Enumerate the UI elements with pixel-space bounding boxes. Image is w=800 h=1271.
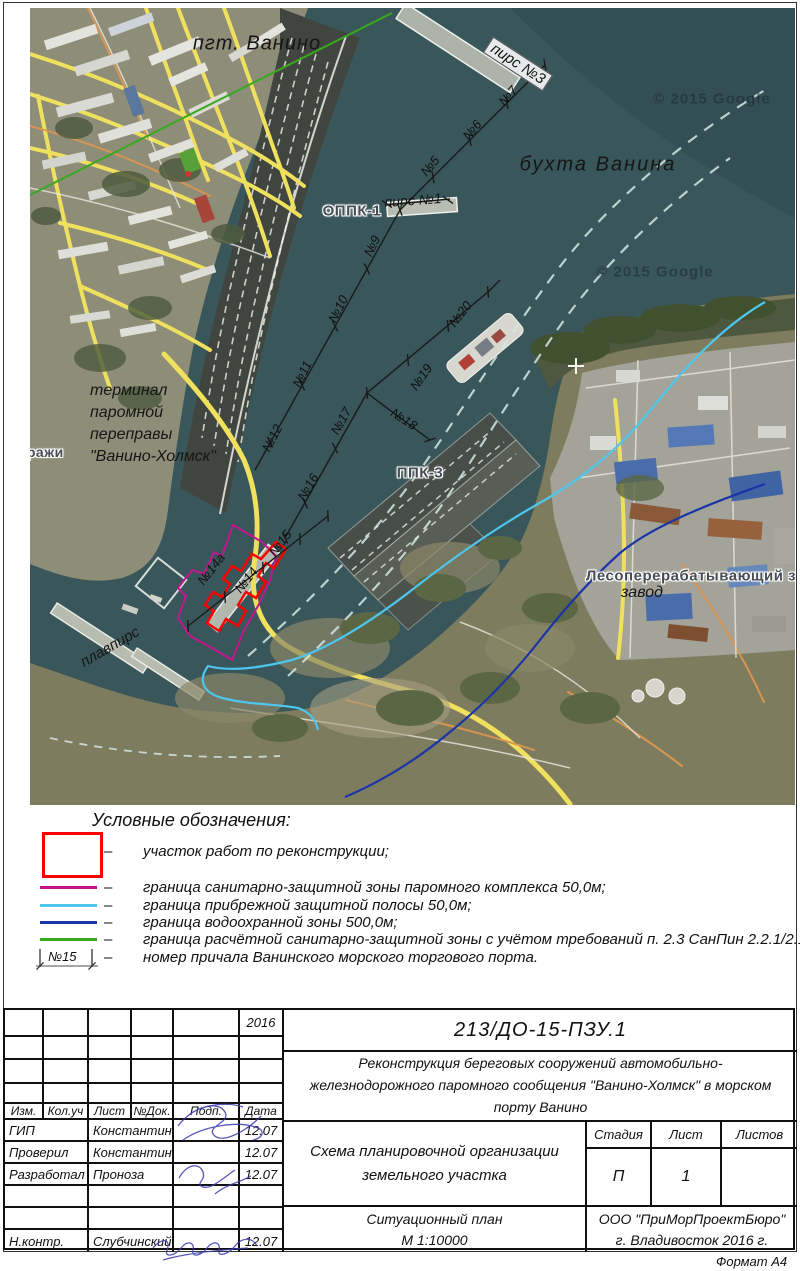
staff-role: Разработал <box>5 1164 89 1186</box>
revision-cell <box>132 1010 174 1037</box>
revision-cell <box>132 1060 174 1084</box>
sawmill-label: Лесоперерабатывающий з <box>586 568 795 585</box>
column-header-data: Дата <box>240 1104 284 1120</box>
revision-cell <box>240 1037 284 1060</box>
staff-date: 12.07 <box>240 1142 284 1164</box>
legend-dash: – <box>104 843 112 860</box>
revision-cell <box>89 1010 132 1037</box>
staff-signature-cell <box>174 1208 240 1230</box>
ppk3-label: ППК-3 <box>397 465 444 482</box>
revision-cell <box>89 1037 132 1060</box>
staff-date: 12.07 <box>240 1230 284 1252</box>
staff-date: 12.07 <box>240 1164 284 1186</box>
staff-signature-cell <box>174 1164 240 1186</box>
revision-cell <box>44 1010 89 1037</box>
google-watermark-2: © 2015 Google <box>596 264 713 281</box>
sheet-value: 1 <box>652 1149 722 1207</box>
legend-dash: – <box>104 879 112 896</box>
revision-cell <box>174 1010 240 1037</box>
revision-cell <box>132 1037 174 1060</box>
staff-signature-cell <box>174 1142 240 1164</box>
garages-label: гаражи <box>30 444 64 460</box>
staff-date <box>240 1208 284 1230</box>
legend-item-text: граница расчётной санитарно-защитной зон… <box>143 931 800 948</box>
drawing-title: Схема планировочной организации земельно… <box>284 1122 587 1207</box>
company-name: ООО "ПриМорПроектБюро" г. Владивосток 20… <box>587 1207 797 1252</box>
legend-dash: – <box>104 897 112 914</box>
google-watermark: © 2015 Google <box>653 91 770 108</box>
sawmill-label-2: завод <box>621 584 663 602</box>
legend-dash: – <box>104 914 112 931</box>
stage-header: Стадия <box>587 1122 652 1149</box>
legend-dash: – <box>104 949 112 966</box>
legend-title: Условные обозначения: <box>92 810 291 831</box>
oppk1-label: ОППК-1 <box>323 203 382 220</box>
revision-cell <box>5 1060 44 1084</box>
revision-cell <box>44 1037 89 1060</box>
legend-line-swatch-cyan <box>40 904 97 907</box>
revision-cell <box>174 1084 240 1104</box>
column-header-koluch: Кол.уч <box>44 1104 89 1120</box>
staff-signature-cell <box>174 1186 240 1208</box>
legend-item-text: граница санитарно-защитной зоны паромног… <box>143 879 606 896</box>
format-note: Формат А4 <box>716 1254 787 1269</box>
legend-line-swatch-magenta <box>40 886 97 889</box>
town-label: пгт. Ванино <box>193 33 321 56</box>
staff-date <box>240 1186 284 1208</box>
view-name: Ситуационный план М 1:10000 <box>284 1207 587 1252</box>
column-header-izm: Изм. <box>5 1104 44 1120</box>
document-code: 213/ДО-15-ПЗУ.1 <box>284 1010 797 1052</box>
year-cell: 2016 <box>240 1010 284 1037</box>
legend-line-swatch-blue <box>40 921 97 924</box>
staff-name <box>89 1186 174 1208</box>
staff-role: Н.контр. <box>5 1230 89 1252</box>
revision-cell <box>89 1060 132 1084</box>
legend-item-text: граница прибрежной защитной полосы 50,0м… <box>143 897 472 914</box>
legend-item-text: граница водоохранной зоны 500,0м; <box>143 914 398 931</box>
staff-name: Слубчинский <box>89 1230 174 1252</box>
revision-cell <box>174 1060 240 1084</box>
drawing-sheet: пгт. Ванино бухта Ванина пирс №3 пирс №1… <box>0 0 800 1271</box>
staff-name: Проноза <box>89 1164 174 1186</box>
revision-cell <box>44 1084 89 1104</box>
staff-role: Проверил <box>5 1142 89 1164</box>
staff-date: 12.07 <box>240 1120 284 1142</box>
project-name: Реконструкция береговых сооружений автом… <box>284 1052 797 1122</box>
staff-name: Константинов <box>89 1120 174 1142</box>
bay-label: бухта Ванина <box>520 154 677 177</box>
situational-plan-map: пгт. Ванино бухта Ванина пирс №3 пирс №1… <box>30 8 795 805</box>
stage-value: П <box>587 1149 652 1207</box>
column-header-dok: №Док. <box>132 1104 174 1120</box>
svg-text:№15: №15 <box>48 949 77 964</box>
revision-cell <box>132 1084 174 1104</box>
ferry-terminal-label: терминал паромной переправы "Ванино-Холм… <box>90 380 216 468</box>
staff-role <box>5 1208 89 1230</box>
revision-cell <box>174 1037 240 1060</box>
staff-signature-cell <box>174 1230 240 1252</box>
legend-berth-number-symbol: №15 <box>34 946 100 972</box>
revision-cell <box>5 1084 44 1104</box>
revision-cell <box>89 1084 132 1104</box>
legend-item-text: участок работ по реконструкции; <box>143 843 389 860</box>
staff-name: Константинов <box>89 1142 174 1164</box>
staff-role <box>5 1186 89 1208</box>
revision-cell <box>5 1010 44 1037</box>
legend-work-area-swatch <box>42 832 103 878</box>
sheets-value <box>722 1149 797 1207</box>
revision-cell <box>240 1084 284 1104</box>
revision-cell <box>44 1060 89 1084</box>
revision-cell <box>240 1060 284 1084</box>
revision-cell <box>5 1037 44 1060</box>
legend-line-swatch-green <box>40 938 97 941</box>
title-block: 2016 Изм. Кол.уч Лист №Док. Подп. Дата Г… <box>3 1008 795 1250</box>
staff-signature-cell <box>174 1120 240 1142</box>
staff-role: ГИП <box>5 1120 89 1142</box>
staff-name <box>89 1208 174 1230</box>
legend-dash: – <box>104 931 112 948</box>
sheets-header: Листов <box>722 1122 797 1149</box>
column-header-list: Лист <box>89 1104 132 1120</box>
column-header-podp: Подп. <box>174 1104 240 1120</box>
sheet-header: Лист <box>652 1122 722 1149</box>
legend-item-text: номер причала Ванинского морского торгов… <box>143 949 538 966</box>
